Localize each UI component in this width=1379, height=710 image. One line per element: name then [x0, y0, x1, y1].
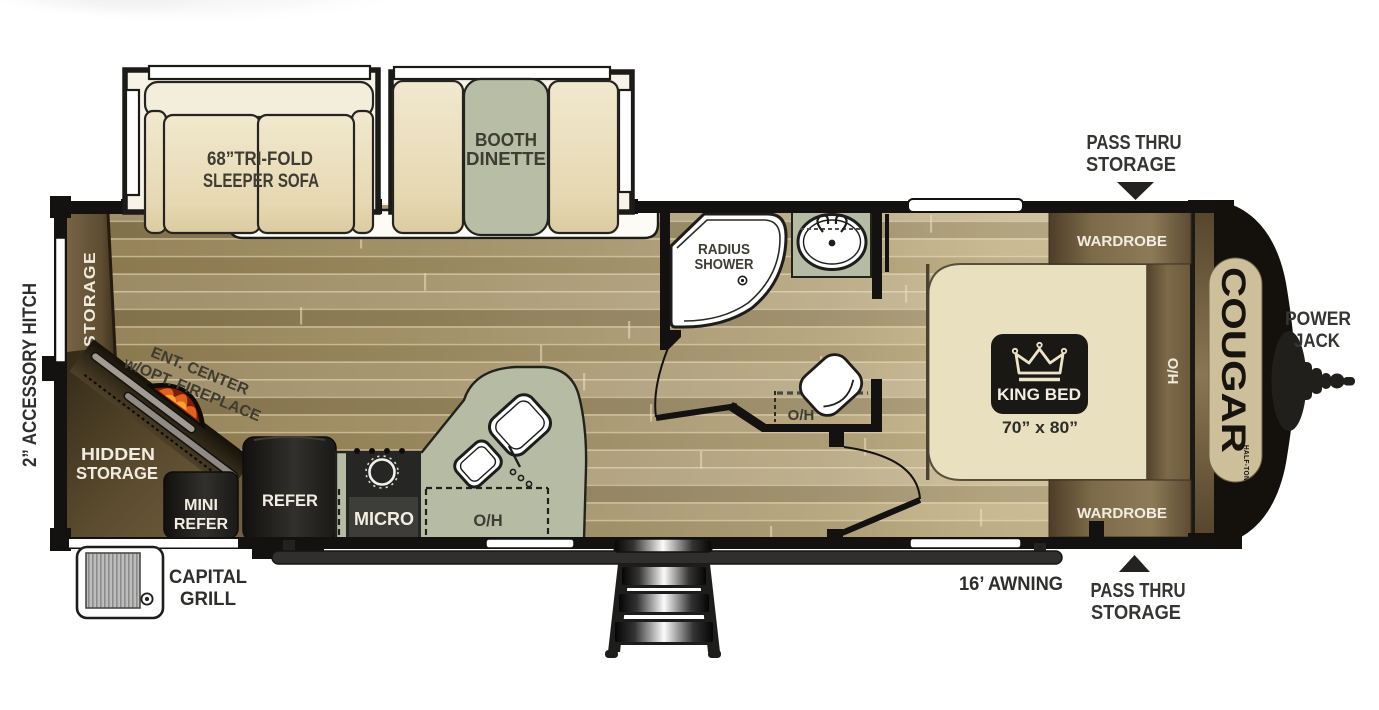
svg-text:16’ AWNING: 16’ AWNING	[959, 573, 1063, 595]
svg-text:O/H: O/H	[473, 512, 502, 530]
svg-text:GRILL: GRILL	[180, 588, 236, 610]
svg-text:HALF-TON: HALF-TON	[1242, 445, 1249, 481]
svg-text:JACK: JACK	[1294, 331, 1340, 352]
svg-text:PASS THRU: PASS THRU	[1087, 132, 1182, 154]
svg-text:MICRO: MICRO	[354, 509, 414, 529]
svg-text:REFER: REFER	[174, 516, 229, 533]
svg-text:COUGAR: COUGAR	[1214, 267, 1252, 453]
svg-text:PASS THRU: PASS THRU	[1091, 580, 1186, 602]
svg-text:SLEEPER SOFA: SLEEPER SOFA	[203, 171, 319, 192]
svg-text:WARDROBE: WARDROBE	[1077, 233, 1167, 250]
svg-text:REFER: REFER	[262, 491, 318, 510]
svg-text:STORAGE: STORAGE	[1086, 154, 1176, 176]
svg-text:HIDDEN: HIDDEN	[81, 444, 155, 464]
svg-text:70” x 80”: 70” x 80”	[1002, 418, 1078, 437]
svg-text:STORAGE: STORAGE	[1091, 602, 1181, 624]
svg-text:KING BED: KING BED	[997, 385, 1081, 404]
svg-text:MINI: MINI	[184, 497, 218, 514]
svg-text:O/H: O/H	[788, 407, 815, 424]
svg-text:POWER: POWER	[1285, 309, 1351, 330]
svg-text:RADIUS: RADIUS	[698, 242, 750, 258]
svg-text:DINETTE: DINETTE	[466, 149, 546, 169]
svg-text:STORAGE: STORAGE	[76, 463, 158, 483]
svg-text:68”TRI-FOLD: 68”TRI-FOLD	[207, 149, 313, 170]
svg-text:WARDROBE: WARDROBE	[1077, 505, 1167, 522]
svg-text:SHOWER: SHOWER	[695, 257, 754, 273]
svg-text:STORAGE: STORAGE	[82, 251, 99, 347]
svg-text:CAPITAL: CAPITAL	[169, 566, 247, 588]
svg-text:H/O: H/O	[1165, 357, 1182, 384]
svg-text:2” ACCESSORY HITCH: 2” ACCESSORY HITCH	[20, 283, 41, 467]
svg-text:BOOTH: BOOTH	[475, 130, 537, 150]
